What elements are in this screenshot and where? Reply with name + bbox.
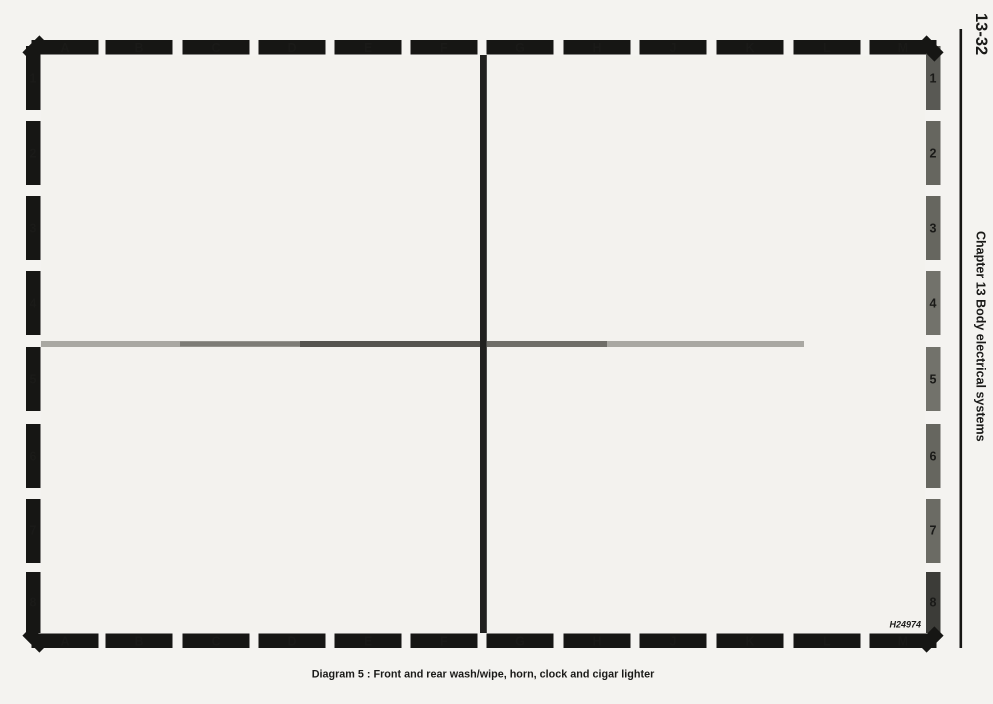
svg-text:4: 4 xyxy=(30,297,37,311)
svg-text:M: M xyxy=(898,635,908,649)
svg-text:8: 8 xyxy=(930,596,937,610)
svg-text:4: 4 xyxy=(930,297,937,311)
svg-text:H: H xyxy=(592,635,601,649)
svg-text:E: E xyxy=(364,635,372,649)
svg-text:E: E xyxy=(364,41,372,55)
svg-text:7: 7 xyxy=(930,524,937,538)
svg-text:F: F xyxy=(440,41,448,55)
svg-text:2: 2 xyxy=(30,147,37,161)
svg-text:K: K xyxy=(745,635,754,649)
svg-text:3: 3 xyxy=(30,222,37,236)
svg-text:F: F xyxy=(440,635,448,649)
svg-text:B: B xyxy=(134,41,143,55)
svg-text:5: 5 xyxy=(30,373,37,387)
svg-text:K: K xyxy=(745,41,754,55)
svg-text:D: D xyxy=(287,635,296,649)
svg-text:H24974: H24974 xyxy=(889,620,921,630)
svg-text:7: 7 xyxy=(30,524,37,538)
svg-text:1: 1 xyxy=(930,72,937,86)
svg-text:B: B xyxy=(134,635,143,649)
svg-text:1: 1 xyxy=(30,72,37,86)
svg-text:A: A xyxy=(60,635,69,649)
svg-text:A: A xyxy=(60,41,69,55)
svg-text:6: 6 xyxy=(930,450,937,464)
svg-text:6: 6 xyxy=(30,450,37,464)
svg-text:M: M xyxy=(898,41,908,55)
svg-text:G: G xyxy=(515,41,525,55)
svg-text:L: L xyxy=(823,41,831,55)
svg-text:2: 2 xyxy=(930,147,937,161)
svg-text:8: 8 xyxy=(30,596,37,610)
svg-text:H: H xyxy=(592,41,601,55)
svg-text:D: D xyxy=(287,41,296,55)
svg-text:C: C xyxy=(211,41,220,55)
svg-text:G: G xyxy=(515,635,525,649)
svg-text:5: 5 xyxy=(930,373,937,387)
svg-text:J: J xyxy=(670,635,677,649)
svg-text:C: C xyxy=(211,635,220,649)
svg-text:J: J xyxy=(670,41,677,55)
svg-text:L: L xyxy=(823,635,831,649)
svg-text:3: 3 xyxy=(930,222,937,236)
svg-text:13-32: 13-32 xyxy=(972,13,990,55)
svg-text:Diagram 5 : Front and rear was: Diagram 5 : Front and rear wash/wipe, ho… xyxy=(312,669,655,681)
svg-text:Chapter 13 Body electrical sys: Chapter 13 Body electrical systems xyxy=(974,231,988,442)
